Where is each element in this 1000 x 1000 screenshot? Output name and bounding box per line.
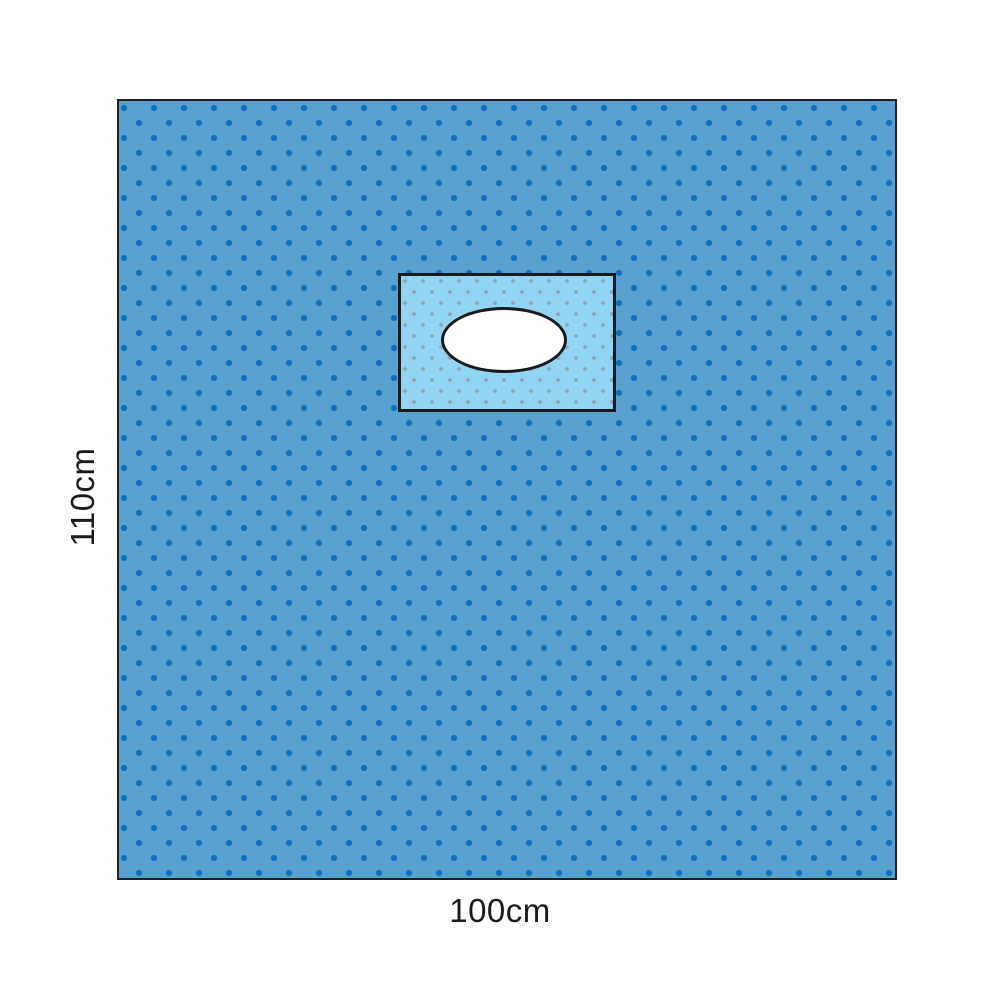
fenestration-patch xyxy=(398,273,616,412)
width-dimension-label: 100cm xyxy=(449,892,551,930)
diagram-canvas: 110cm 100cm xyxy=(0,0,1000,1000)
fenestration-hole-icon xyxy=(441,307,567,373)
height-dimension-label: 110cm xyxy=(64,447,102,546)
surgical-drape xyxy=(117,99,897,880)
